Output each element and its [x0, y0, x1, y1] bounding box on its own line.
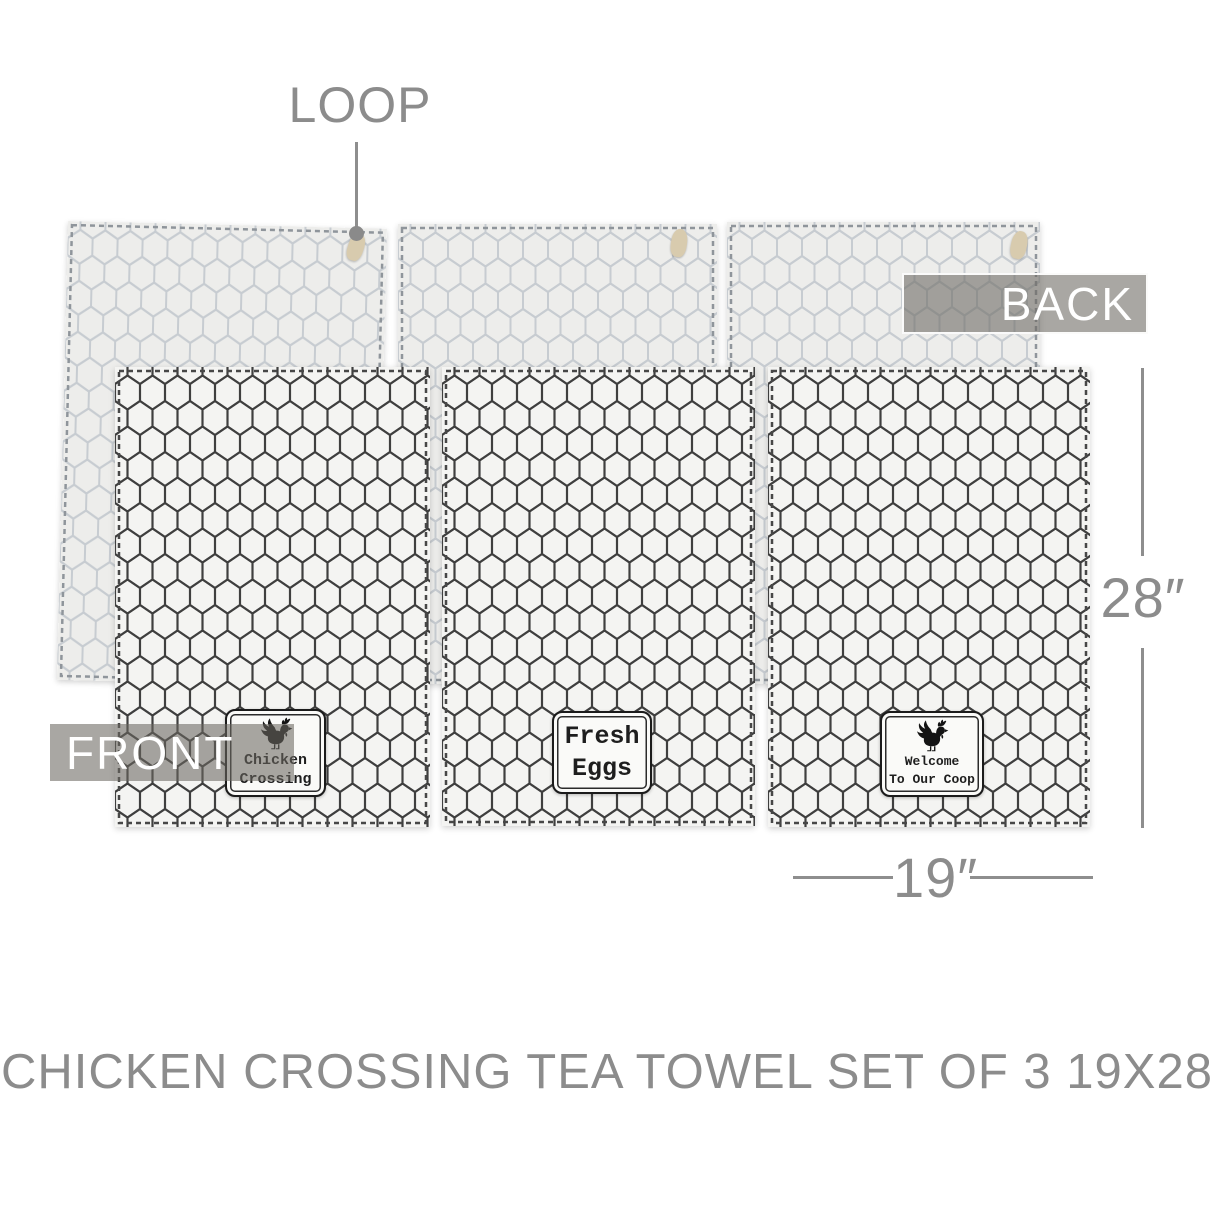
width-dim-label: 19″ — [893, 850, 970, 906]
loop-pointer-line — [355, 142, 358, 230]
product-diagram: Chicken Crossing Fresh Eggs Welcome To O… — [0, 0, 1214, 1214]
front-label: FRONT — [66, 730, 234, 776]
height-dim-line-bottom — [1141, 648, 1144, 828]
loop-pointer-dot — [349, 226, 364, 241]
width-dim-line-right — [970, 876, 1093, 879]
badge-welcome-coop: Welcome To Our Coop — [880, 711, 984, 797]
badge-line: Eggs — [572, 753, 632, 784]
rooster-icon — [915, 719, 949, 753]
badge-line: Welcome — [905, 753, 960, 771]
back-label-bar: BACK — [902, 273, 1148, 334]
product-title: CHICKEN CROSSING TEA TOWEL SET OF 3 19X2… — [0, 1048, 1214, 1097]
height-dim-line-top — [1141, 368, 1144, 556]
badge-line: To Our Coop — [889, 771, 975, 789]
badge-line: Fresh — [564, 721, 639, 752]
back-label: BACK — [1001, 281, 1134, 327]
front-label-bar: FRONT — [50, 724, 294, 781]
loop-label: LOOP — [280, 80, 440, 130]
width-dim-line-left — [793, 876, 893, 879]
badge-fresh-eggs: Fresh Eggs — [552, 711, 652, 794]
height-dim-label: 28″ — [1093, 570, 1193, 626]
